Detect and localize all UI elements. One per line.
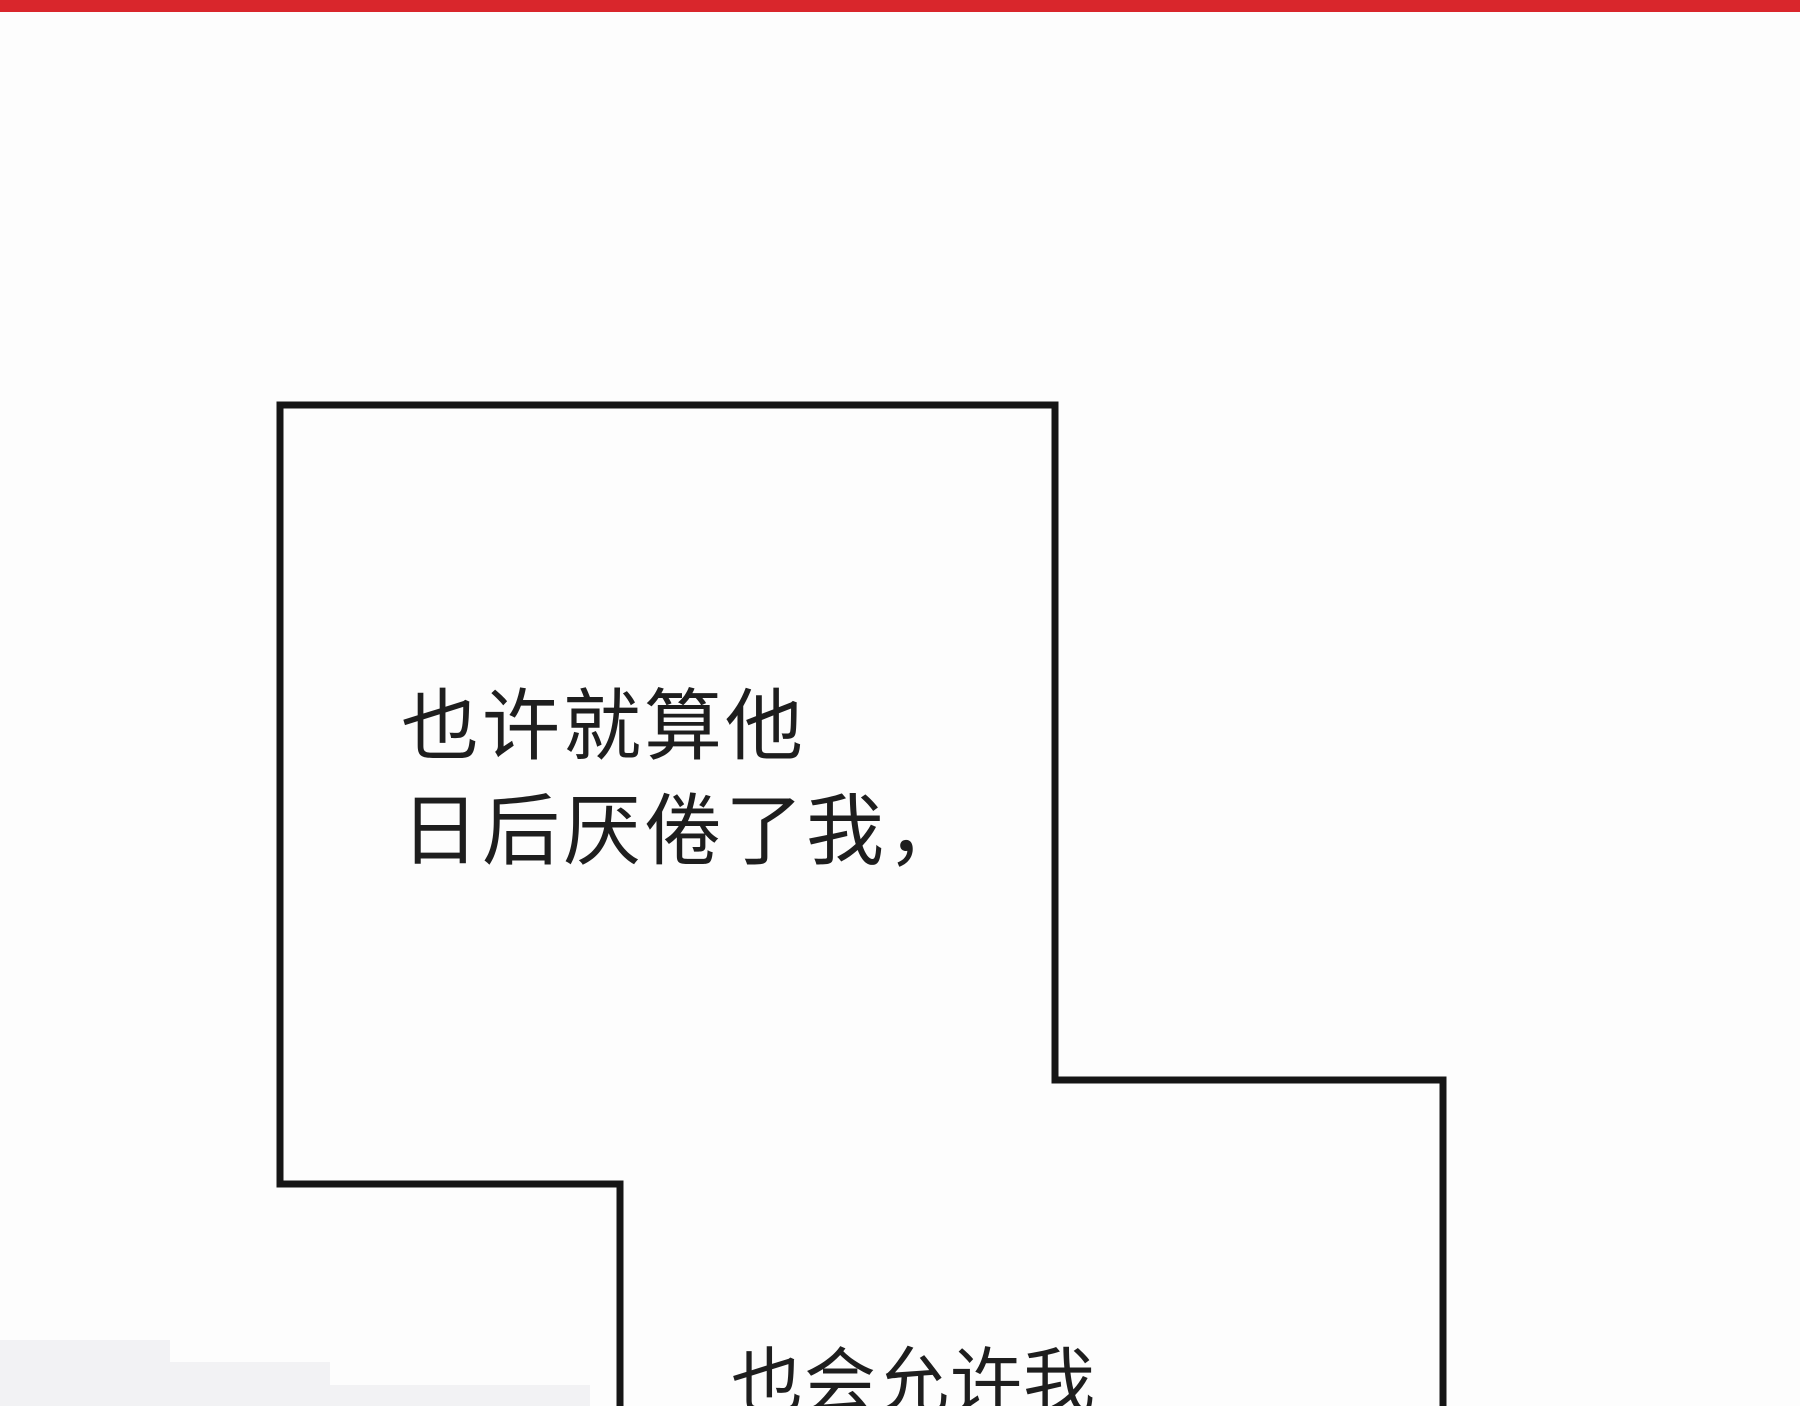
narration-bottom-line: 也会允许我 (731, 1346, 1096, 1406)
top-red-strip (0, 0, 1800, 12)
narration-line-2: 日后厌倦了我， (401, 793, 968, 871)
comic-panel-canvas: 也许就算他 日后厌倦了我， 也会允许我 (0, 0, 1800, 1406)
panel-graphics-layer (0, 0, 1800, 1406)
narration-line-1: 也许就算他 (401, 688, 806, 766)
panel-outline (280, 405, 1443, 1406)
bottom-left-shading (0, 1340, 590, 1406)
